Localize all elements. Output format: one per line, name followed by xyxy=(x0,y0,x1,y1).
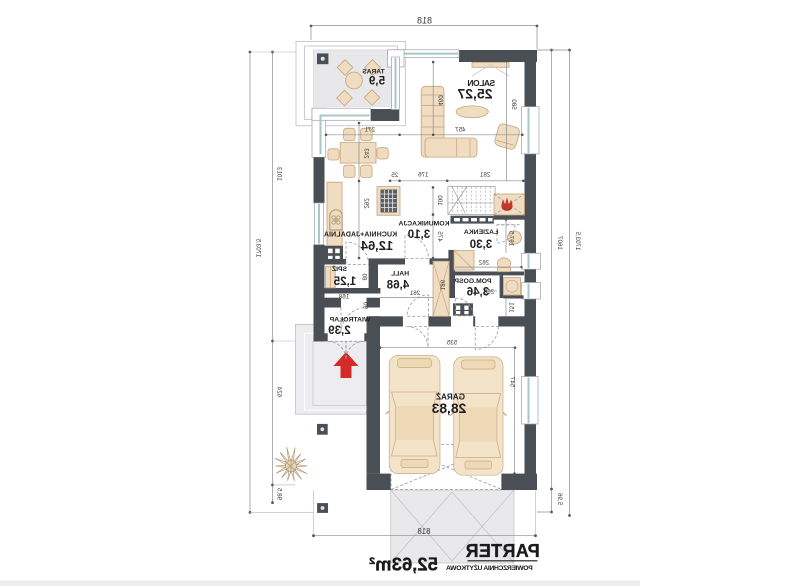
svg-text:151: 151 xyxy=(508,302,515,313)
svg-text:WIATROŁAP: WIATROŁAP xyxy=(329,317,370,324)
svg-text:HALL: HALL xyxy=(391,271,409,278)
svg-text:3,10: 3,10 xyxy=(408,228,431,241)
svg-text:5,9: 5,9 xyxy=(368,75,385,88)
svg-text:KOMUNIKACJA: KOMUNIKACJA xyxy=(398,221,449,228)
svg-text:818: 818 xyxy=(417,16,432,26)
svg-text:475: 475 xyxy=(436,231,443,242)
svg-text:281: 281 xyxy=(479,172,490,179)
svg-text:90: 90 xyxy=(362,302,369,309)
svg-text:176: 176 xyxy=(418,172,429,179)
svg-text:ŁAZIENKA: ŁAZIENKA xyxy=(464,229,498,236)
svg-text:4,68: 4,68 xyxy=(386,279,409,292)
svg-text:197,5: 197,5 xyxy=(508,230,515,246)
svg-text:28,83: 28,83 xyxy=(431,401,466,416)
svg-text:80: 80 xyxy=(361,273,368,280)
svg-text:547: 547 xyxy=(509,376,516,387)
svg-text:292: 292 xyxy=(363,198,370,209)
svg-text:5,96: 5,96 xyxy=(556,492,563,505)
svg-text:186: 186 xyxy=(439,279,446,290)
svg-text:818: 818 xyxy=(417,527,430,536)
svg-text:3,30: 3,30 xyxy=(470,238,493,251)
svg-text:262: 262 xyxy=(478,260,489,267)
svg-text:12,64: 12,64 xyxy=(360,238,393,253)
svg-text:25,27: 25,27 xyxy=(457,86,492,102)
svg-text:100: 100 xyxy=(436,195,443,206)
svg-text:1,25: 1,25 xyxy=(333,275,356,288)
svg-text:25: 25 xyxy=(391,172,398,179)
svg-text:3,46: 3,46 xyxy=(466,286,489,299)
svg-text:52,63m²: 52,63m² xyxy=(369,554,438,575)
svg-text:460: 460 xyxy=(437,95,444,106)
svg-text:624: 624 xyxy=(275,386,282,397)
svg-text:1607: 1607 xyxy=(556,236,563,250)
svg-text:POWIERZCHNIA UŻYTKOWA: POWIERZCHNIA UŻYTKOWA xyxy=(446,564,533,572)
svg-text:271: 271 xyxy=(364,127,375,134)
svg-text:GARAŻ: GARAŻ xyxy=(436,391,465,401)
svg-text:580: 580 xyxy=(510,99,517,110)
svg-text:POM.GOSP.: POM.GOSP. xyxy=(453,278,491,285)
svg-text:457: 457 xyxy=(455,127,466,134)
svg-text:243: 243 xyxy=(363,148,370,159)
svg-text:168: 168 xyxy=(338,294,349,301)
svg-text:SPIŻ: SPIŻ xyxy=(332,265,347,273)
svg-text:535: 535 xyxy=(446,340,457,347)
svg-text:261: 261 xyxy=(409,290,420,297)
svg-text:98,5: 98,5 xyxy=(275,487,282,500)
svg-text:1703,5: 1703,5 xyxy=(574,231,581,250)
svg-text:PARTER: PARTER xyxy=(465,541,539,561)
svg-text:1013: 1013 xyxy=(275,167,282,181)
svg-text:1703,5: 1703,5 xyxy=(255,238,262,257)
svg-text:2,39: 2,39 xyxy=(328,324,351,337)
